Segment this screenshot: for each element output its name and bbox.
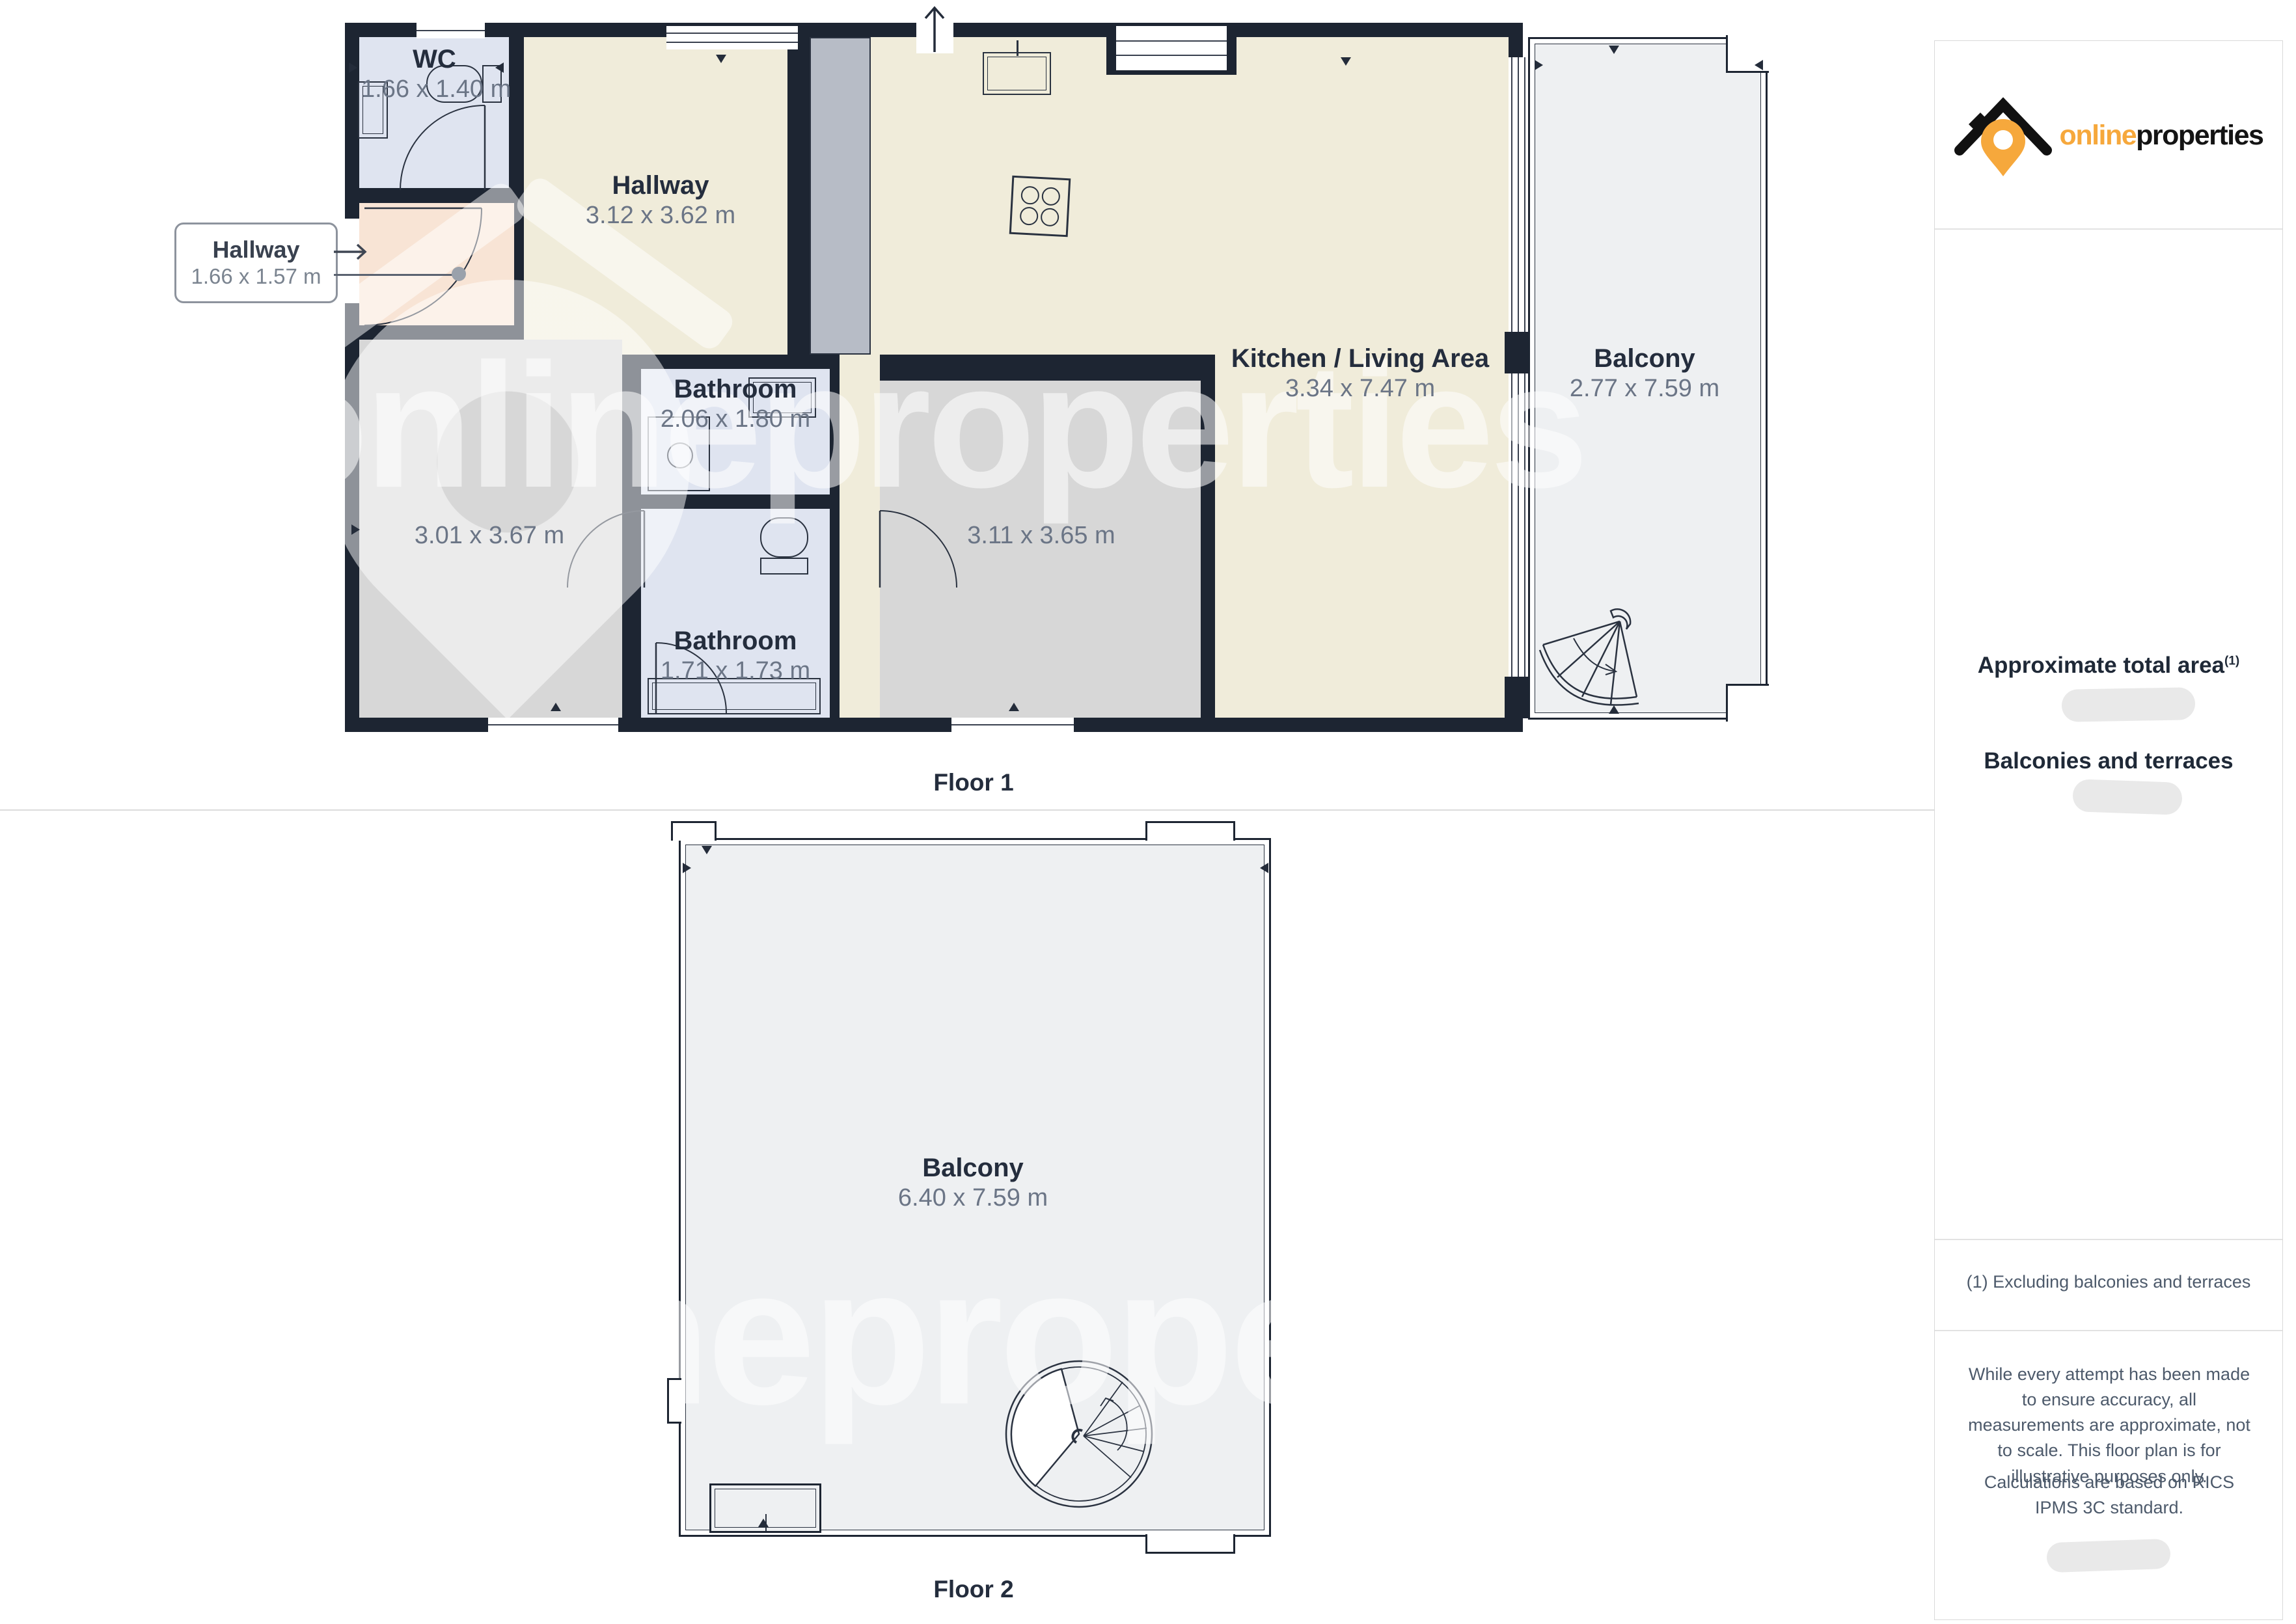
brand-logo: onlineproperties [1935,59,2282,212]
sidebar-divider [1935,1239,2282,1240]
redacted-value [2062,687,2196,722]
sidebar-divider [1935,228,2282,230]
redacted-value [2046,1539,2170,1573]
room-dims-left: 3.01 x 3.67 m [372,521,607,550]
callout-leader-line [334,274,455,276]
sidebar-standard-note: Calculations are based on RICS IPMS 3C s… [1962,1470,2256,1521]
floor2-caption: Floor 2 [843,1576,1104,1603]
balcony2-tab [671,821,717,841]
room-dims-mid: 3.11 x 3.65 m [911,521,1171,550]
floor1-caption: Floor 1 [843,769,1104,796]
brand-wordmark: onlineproperties [2060,120,2263,152]
watermark-text: onlineproperties [260,1223,1727,1448]
callout-target-dot [452,267,466,281]
sidebar-footnote: (1) Excluding balconies and terraces [1935,1269,2282,1295]
balconies-heading: Balconies and terraces [1935,748,2282,774]
house-pin-logo-icon [1954,90,2052,182]
floorplan-page: onlineproperties onlineproperties WC1.66… [0,0,2296,1624]
total-area-heading: Approximate total area(1) [1935,653,2282,679]
room-label-balcony1: Balcony2.77 x 7.59 m [1544,344,1745,403]
balcony2-tab [1145,821,1235,841]
room-label-wc: WC1.66 x 1.40 m [361,44,508,104]
entrance-arrow-icon [915,0,954,56]
sidebar-divider [1935,1330,2282,1331]
room-label-hallway: Hallway3.12 x 3.62 m [540,170,781,230]
room-label-bathroom-bottom: Bathroom1.71 x 1.73 m [641,626,830,686]
balcony-notch [1726,684,1769,722]
balcony2-step [667,1378,681,1424]
room-label-kitchen-living: Kitchen / Living Area3.34 x 7.47 m [1210,344,1510,403]
room-label-balcony2: Balcony6.40 x 7.59 m [853,1153,1093,1213]
balcony2-tab [1145,1534,1235,1554]
info-sidebar: onlineproperties Approximate total area(… [1934,40,2283,1620]
room-label-bathroom-top: Bathroom2.06 x 1.80 m [641,374,830,434]
hallway-callout: Hallway 1.66 x 1.57 m [174,223,338,303]
floorplan-panels: onlineproperties onlineproperties WC1.66… [0,0,1934,1624]
callout-arrow-icon [331,238,373,265]
redacted-value [2072,779,2183,815]
